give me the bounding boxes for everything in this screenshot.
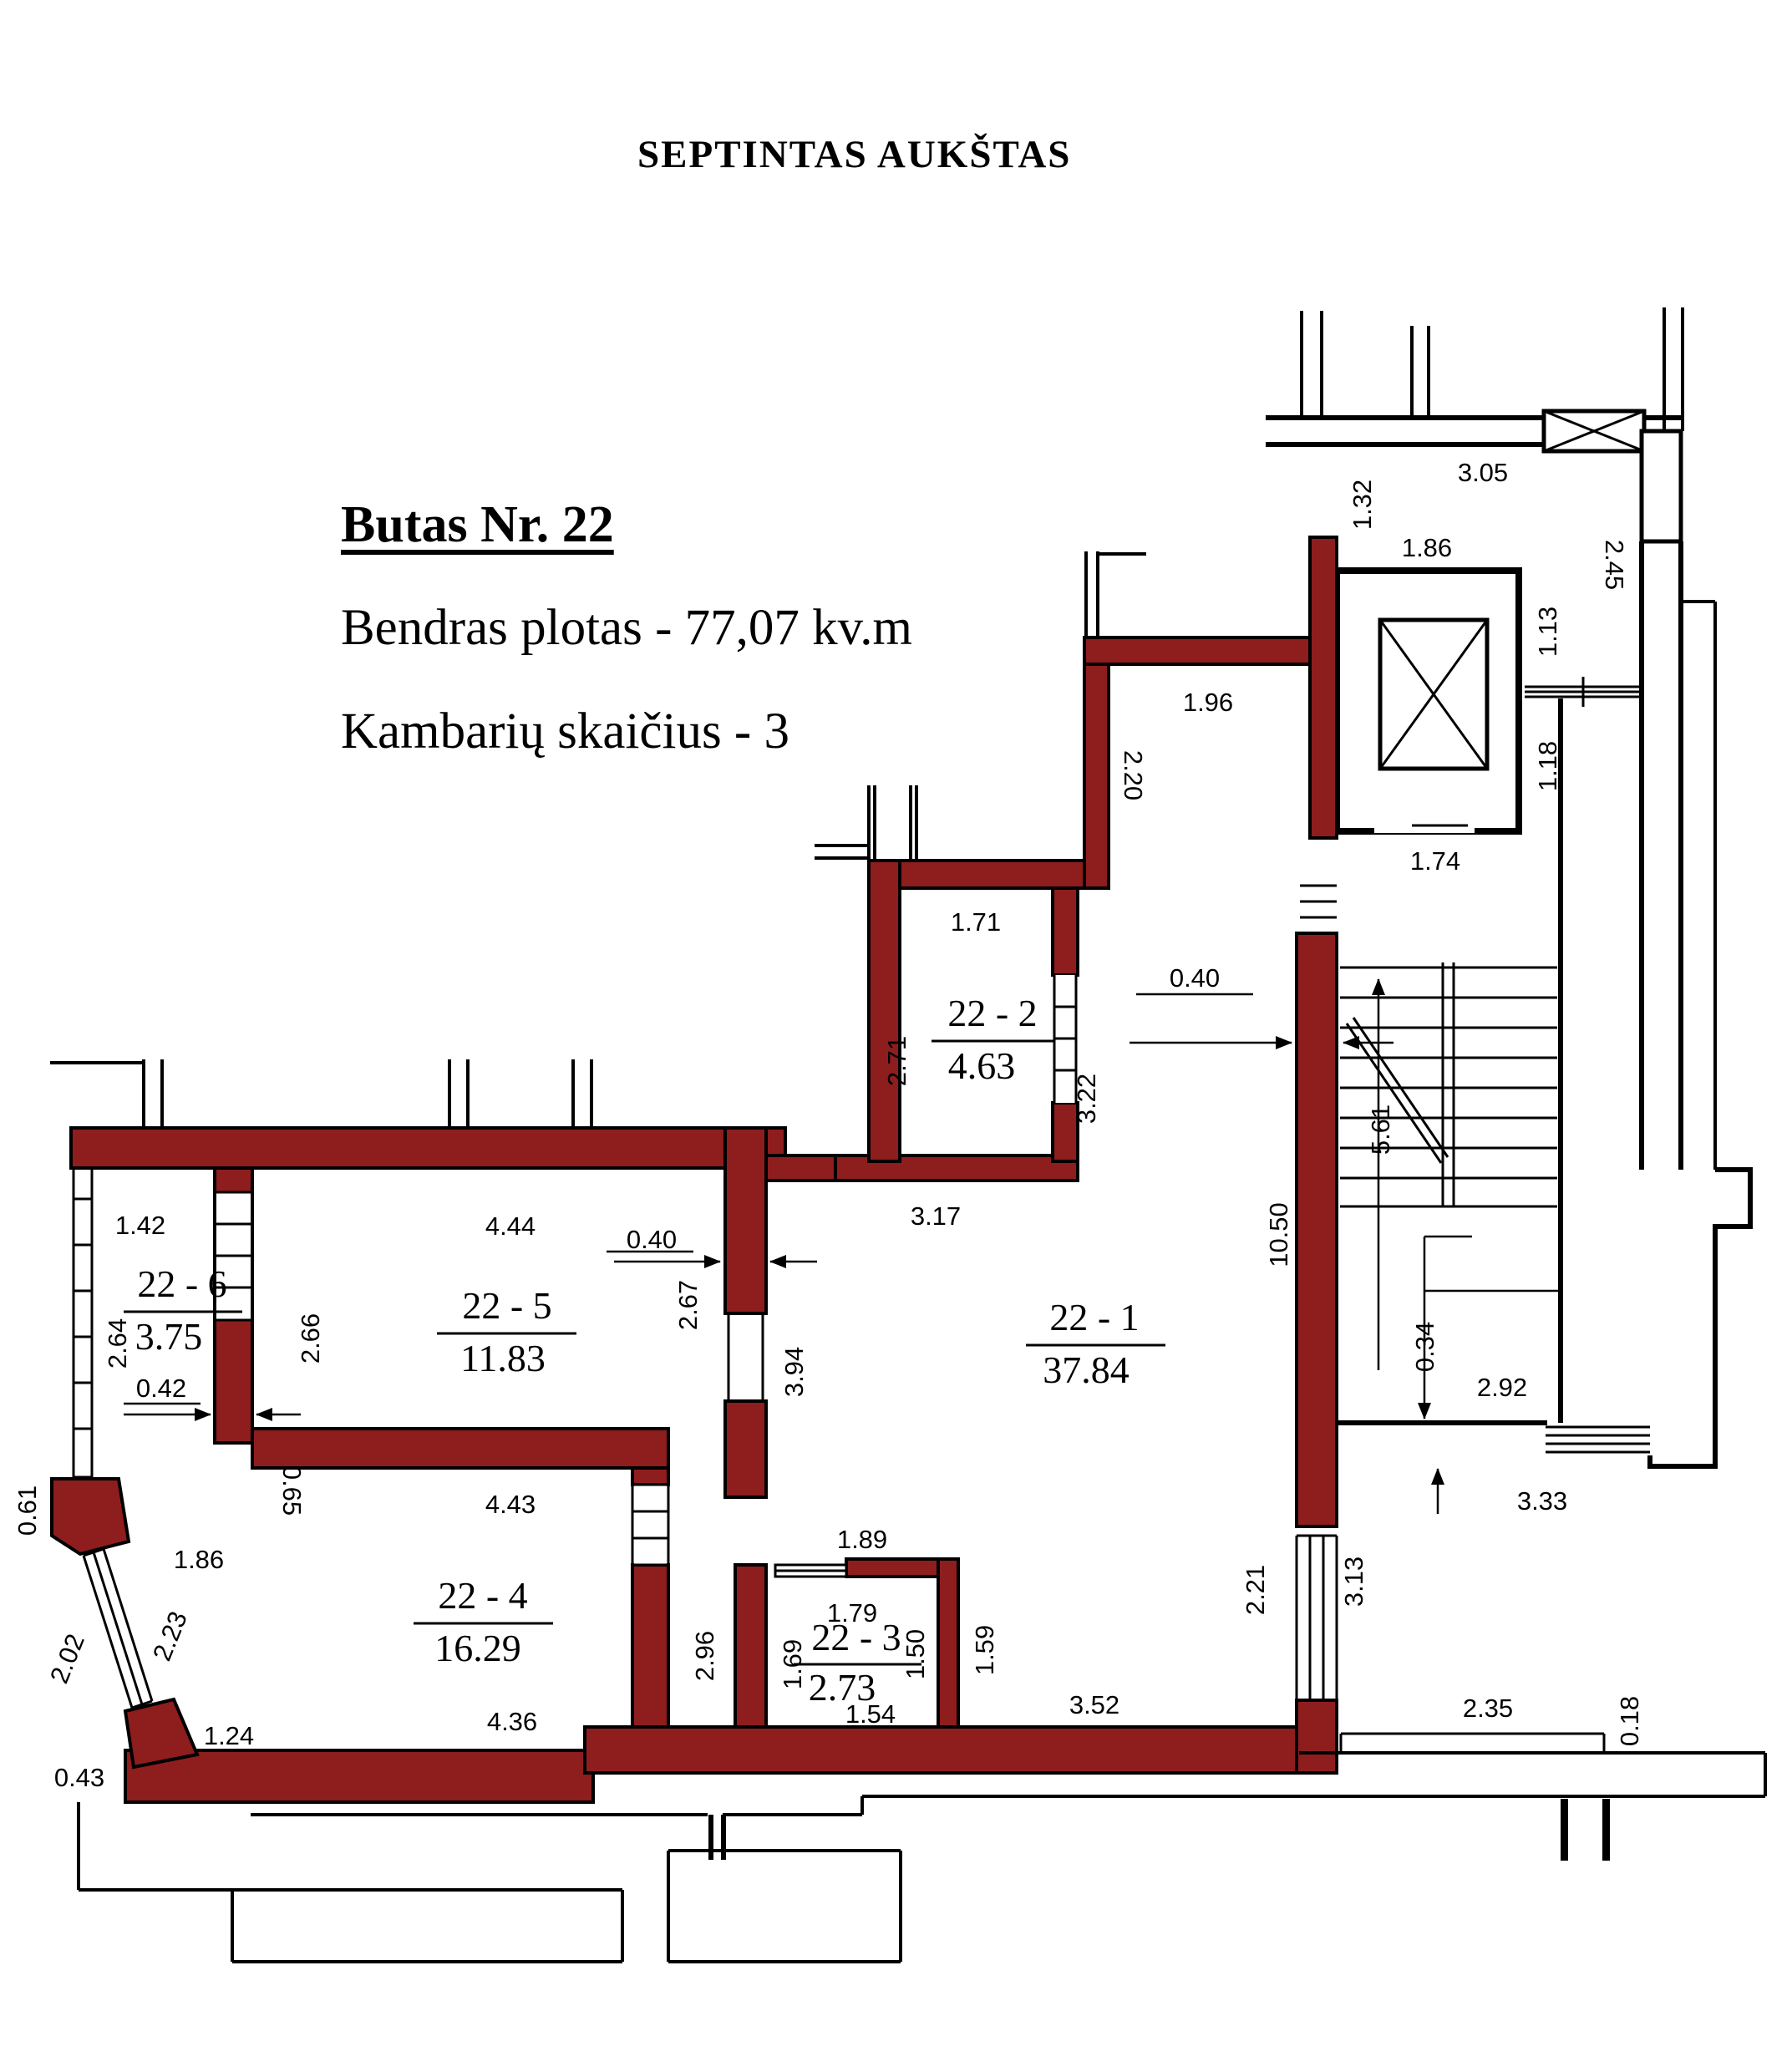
dim-label: 2.71 [882,1036,911,1086]
dim-label: 0.61 [13,1485,42,1536]
apartment-walls [52,537,1337,1802]
dim-label: 1.71 [951,907,1001,937]
room-area: 2.73 [809,1666,876,1709]
room-area: 11.83 [460,1337,546,1379]
dim-label: 0.42 [136,1374,186,1403]
dim-label: 3.94 [779,1347,809,1397]
vent-shaft-icon [1544,411,1644,451]
room-22-5-label: 22 - 5 11.83 [437,1284,576,1379]
dim-label: 0.40 [627,1225,677,1254]
floor-plan-page: SEPTINTAS AUKŠTAS Butas Nr. 22 Bendras p… [0,0,1792,2067]
dim-label: 2.21 [1241,1565,1270,1615]
elevator-icon [1337,571,1519,833]
dim-label: 1.32 [1348,480,1377,530]
dim-label: 1.18 [1533,741,1562,791]
room-name: 22 - 4 [438,1574,527,1617]
dim-label: 0.34 [1410,1322,1439,1372]
dim-label: 1.89 [837,1525,887,1554]
dim-label: 1.13 [1533,607,1562,657]
dim-label: 4.44 [485,1211,536,1241]
room-name: 22 - 2 [947,992,1037,1034]
dim-label: 0.40 [1170,963,1220,993]
dim-label: 4.36 [487,1707,537,1736]
room-area: 37.84 [1043,1348,1130,1391]
dim-label: 0.18 [1615,1696,1644,1746]
dim-label: 3.33 [1517,1486,1567,1516]
dim-label: 5.61 [1366,1105,1395,1155]
dim-label: 1.42 [115,1211,165,1240]
dim-label: 3.05 [1458,458,1508,487]
room-22-4-label: 22 - 4 16.29 [414,1574,553,1669]
room-area: 3.75 [135,1315,203,1358]
dim-label: 2.45 [1600,540,1629,590]
room-name: 22 - 6 [137,1262,226,1305]
room-name: 22 - 3 [811,1616,901,1658]
room-name: 22 - 1 [1049,1296,1139,1338]
dim-label: 10.50 [1264,1202,1293,1267]
room-area: 4.63 [948,1044,1016,1087]
dim-label: 4.43 [485,1490,536,1519]
dim-label: 1.86 [174,1545,224,1574]
dim-label: 3.13 [1339,1557,1368,1607]
dim-label: 0.65 [277,1465,307,1516]
dim-label: 1.24 [204,1721,254,1750]
dim-label: 2.20 [1119,750,1148,800]
dim-label: 1.74 [1410,846,1460,876]
dim-label: 2.35 [1463,1694,1513,1723]
dim-label: 3.22 [1072,1074,1101,1124]
room-name: 22 - 5 [462,1284,551,1327]
dim-label: 0.43 [54,1763,104,1792]
room-22-2-label: 22 - 2 4.63 [932,992,1054,1087]
dim-label: 3.52 [1069,1690,1119,1719]
stairs-icon [1340,962,1557,1206]
dim-label: 2.66 [296,1313,325,1364]
dim-label: 2.23 [147,1607,193,1665]
floor-plan: 3.05 1.86 1.74 1.96 0.40 2.92 3.33 1.71 … [0,0,1792,2067]
dim-label: 1.86 [1402,533,1452,562]
dim-label: 1.96 [1183,688,1233,717]
windows [74,886,1337,1708]
room-area: 16.29 [434,1627,521,1669]
dim-label: 1.59 [970,1625,999,1675]
room-22-1-label: 22 - 1 37.84 [1026,1296,1165,1391]
dim-label: 2.02 [44,1630,90,1688]
dim-label: 3.17 [911,1201,961,1231]
dim-label: 2.92 [1477,1373,1527,1402]
dim-label: 1.50 [901,1629,930,1679]
dim-label: 2.64 [103,1318,132,1369]
dim-label: 2.67 [673,1280,703,1330]
dim-label: 2.96 [690,1631,719,1681]
